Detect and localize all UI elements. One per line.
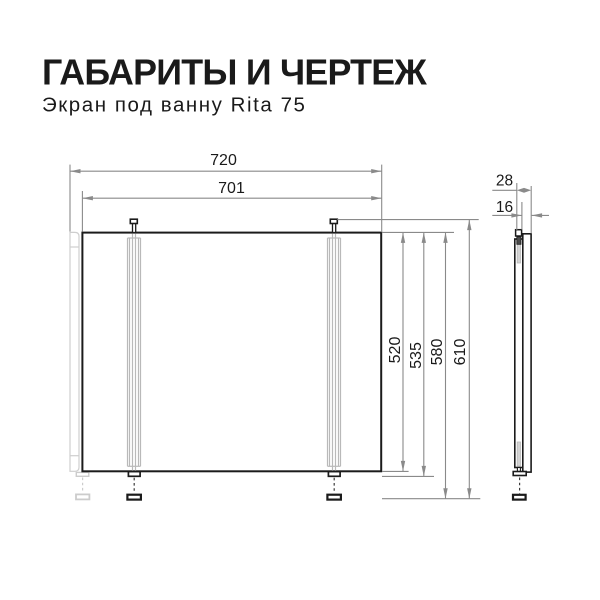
svg-text:580: 580 — [429, 339, 446, 366]
svg-text:701: 701 — [218, 180, 245, 197]
svg-text:ГАБАРИТЫ И ЧЕРТЕЖ: ГАБАРИТЫ И ЧЕРТЕЖ — [42, 53, 427, 93]
svg-text:720: 720 — [210, 152, 237, 169]
svg-text:535: 535 — [408, 342, 425, 369]
svg-text:520: 520 — [387, 337, 404, 364]
svg-text:28: 28 — [496, 172, 513, 189]
svg-text:Экран под ванну Rita 75: Экран под ванну Rita 75 — [42, 94, 306, 117]
svg-text:16: 16 — [496, 199, 513, 216]
svg-text:610: 610 — [452, 339, 469, 366]
